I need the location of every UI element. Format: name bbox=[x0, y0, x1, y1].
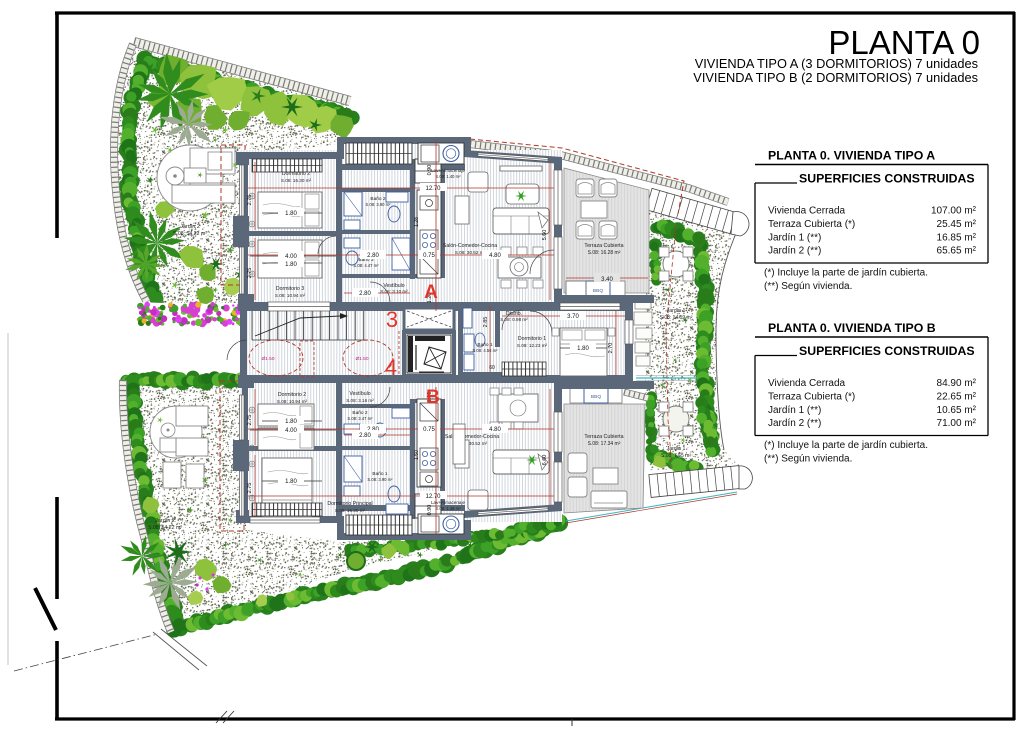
svg-text:S.08: 3.16 m²: S.08: 3.16 m² bbox=[346, 398, 374, 403]
svg-text:1.80: 1.80 bbox=[285, 479, 297, 485]
svg-text:107.00 m²: 107.00 m² bbox=[931, 206, 977, 217]
svg-text:S.08: 7.65 m²: S.08: 7.65 m² bbox=[661, 453, 691, 459]
svg-text:(*) Incluye la parte de jardín: (*) Incluye la parte de jardín cubierta. bbox=[764, 440, 928, 451]
svg-text:4: 4 bbox=[385, 355, 397, 380]
svg-text:S.08: 54.22 m²: S.08: 54.22 m² bbox=[173, 231, 207, 237]
svg-text:Dormitorio 1: Dormitorio 1 bbox=[518, 336, 546, 342]
svg-text:3.40: 3.40 bbox=[601, 277, 613, 283]
svg-text:Jardín 2: Jardín 2 bbox=[155, 518, 175, 524]
svg-text:Vivienda Cerrada: Vivienda Cerrada bbox=[768, 378, 846, 389]
svg-text:S.08: 4.56 m²: S.08: 4.56 m² bbox=[472, 348, 498, 353]
svg-text:Ø1.50: Ø1.50 bbox=[261, 356, 274, 362]
svg-text:Ø1.50: Ø1.50 bbox=[355, 356, 368, 362]
svg-text:S.08: 3.47 m²: S.08: 3.47 m² bbox=[347, 416, 373, 421]
svg-text:1.80: 1.80 bbox=[285, 211, 297, 217]
svg-text:5.60: 5.60 bbox=[542, 230, 548, 241]
svg-text:Jardín 2: Jardín 2 bbox=[180, 224, 200, 230]
svg-text:Terraza Cubierta: Terraza Cubierta bbox=[584, 243, 623, 249]
svg-text:12.70: 12.70 bbox=[425, 494, 441, 500]
svg-text:0.75: 0.75 bbox=[423, 427, 435, 433]
svg-text:1.50: 1.50 bbox=[414, 450, 420, 460]
svg-text:Terraza Cubierta: Terraza Cubierta bbox=[584, 434, 623, 440]
svg-text:Jardín 1: Jardín 1 bbox=[667, 446, 686, 452]
svg-text:2.75: 2.75 bbox=[247, 195, 253, 206]
svg-text:VIVIENDA TIPO A (3 DORMITORIOS: VIVIENDA TIPO A (3 DORMITORIOS) 7 unidad… bbox=[695, 56, 978, 71]
svg-text:16.85 m²: 16.85 m² bbox=[937, 232, 977, 243]
svg-text:A: A bbox=[424, 282, 438, 303]
svg-text:3: 3 bbox=[386, 307, 398, 332]
svg-text:1.80: 1.80 bbox=[285, 419, 297, 425]
svg-text:PLANTA 0. VIVIENDA TIPO B: PLANTA 0. VIVIENDA TIPO B bbox=[768, 321, 936, 335]
svg-text:2.75: 2.75 bbox=[247, 268, 253, 279]
svg-text:S.08: 1.40 m²: S.08: 1.40 m² bbox=[435, 174, 461, 179]
svg-text:2.75: 2.75 bbox=[247, 483, 253, 494]
svg-text:4.00: 4.00 bbox=[285, 428, 297, 434]
svg-text:S.08: 16.28 m²: S.08: 16.28 m² bbox=[588, 250, 621, 256]
svg-text:S.08: 30.52 m²: S.08: 30.52 m² bbox=[455, 250, 486, 255]
svg-text:4.80: 4.80 bbox=[489, 427, 501, 433]
svg-text:BBQ: BBQ bbox=[593, 288, 603, 294]
svg-text:S.08: 16.30 m²: S.08: 16.30 m² bbox=[281, 178, 312, 183]
svg-text:B: B bbox=[426, 387, 440, 408]
svg-text:Vivienda Cerrada: Vivienda Cerrada bbox=[768, 206, 846, 217]
svg-text:SUPERFICIES CONSTRUIDAS: SUPERFICIES CONSTRUIDAS bbox=[799, 172, 975, 186]
svg-text:Vestíbulo: Vestíbulo bbox=[349, 391, 370, 397]
svg-text:SUPERFICIES CONSTRUIDAS: SUPERFICIES CONSTRUIDAS bbox=[799, 344, 975, 358]
svg-text:S.08: 10.94 m²: S.08: 10.94 m² bbox=[275, 293, 306, 298]
svg-text:0.90: 0.90 bbox=[427, 505, 433, 516]
svg-text:2.70: 2.70 bbox=[608, 343, 614, 354]
svg-text:(**) Según vivienda.: (**) Según vivienda. bbox=[764, 454, 852, 465]
svg-text:65.65 m²: 65.65 m² bbox=[937, 246, 977, 257]
svg-text:S.08: 16.30 m²: S.08: 16.30 m² bbox=[335, 508, 366, 513]
svg-text:Dormitorio 2: Dormitorio 2 bbox=[278, 392, 306, 398]
svg-text:(**) Según vivienda.: (**) Según vivienda. bbox=[764, 281, 852, 292]
svg-text:Salón-Comedor-Cocina: Salón-Comedor-Cocina bbox=[443, 243, 497, 249]
svg-text:S.08: 17.34 m²: S.08: 17.34 m² bbox=[588, 441, 621, 447]
svg-text:S.08: 1.48 m²: S.08: 1.48 m² bbox=[435, 506, 461, 511]
svg-text:25.45 m²: 25.45 m² bbox=[937, 219, 977, 230]
svg-text:Dormitorio 3: Dormitorio 3 bbox=[276, 286, 304, 292]
svg-text:Jardín 1 (**): Jardín 1 (**) bbox=[768, 232, 821, 243]
svg-text:S.08: 12.23 m²: S.08: 12.23 m² bbox=[517, 343, 548, 348]
svg-text:60: 60 bbox=[489, 365, 495, 371]
svg-text:12.70: 12.70 bbox=[425, 186, 441, 192]
svg-text:Terraza Cubierta (*): Terraza Cubierta (*) bbox=[768, 219, 855, 230]
svg-text:84.90 m²: 84.90 m² bbox=[937, 378, 977, 389]
svg-text:S.08: 3.90 m²: S.08: 3.90 m² bbox=[367, 477, 393, 482]
svg-text:2.80: 2.80 bbox=[359, 291, 371, 297]
svg-text:S.08: 0.98 m²: S.08: 0.98 m² bbox=[500, 317, 528, 322]
svg-text:3.70: 3.70 bbox=[567, 314, 579, 320]
svg-text:S.08: 4.47 m²: S.08: 4.47 m² bbox=[353, 263, 379, 268]
svg-text:S.08: 10.94 m²: S.08: 10.94 m² bbox=[277, 399, 308, 404]
svg-text:2.85: 2.85 bbox=[483, 317, 489, 328]
svg-text:4.80: 4.80 bbox=[489, 253, 501, 259]
svg-text:Jardín 1: Jardín 1 bbox=[667, 308, 686, 314]
svg-text:1.80: 1.80 bbox=[285, 262, 297, 268]
svg-text:2.75: 2.75 bbox=[247, 415, 253, 426]
svg-text:6.60: 6.60 bbox=[542, 455, 548, 466]
svg-text:Dormitorio Principal: Dormitorio Principal bbox=[327, 501, 372, 507]
svg-text:Jardín 1 (**): Jardín 1 (**) bbox=[768, 405, 821, 416]
svg-text:10.65 m²: 10.65 m² bbox=[937, 405, 977, 416]
svg-text:VIVIENDA TIPO B (2 DORMITORIOS: VIVIENDA TIPO B (2 DORMITORIOS) 7 unidad… bbox=[693, 70, 978, 85]
svg-text:Jardín 2 (**): Jardín 2 (**) bbox=[768, 418, 821, 429]
svg-text:22.65 m²: 22.65 m² bbox=[937, 391, 977, 402]
svg-text:1.28: 1.28 bbox=[414, 217, 420, 227]
svg-text:BBQ: BBQ bbox=[591, 394, 601, 400]
svg-text:Terraza Cubierta (*): Terraza Cubierta (*) bbox=[768, 391, 855, 402]
svg-text:Jardín 2 (**): Jardín 2 (**) bbox=[768, 246, 821, 257]
svg-text:71.00 m²: 71.00 m² bbox=[937, 418, 977, 429]
svg-text:(*) Incluye la parte de jardí: (*) Incluye la parte de jardín cubierta. bbox=[764, 268, 928, 279]
svg-text:PLANTA 0. VIVIENDA TIPO A: PLANTA 0. VIVIENDA TIPO A bbox=[768, 149, 935, 163]
svg-text:S.08: 64.22 m²: S.08: 64.22 m² bbox=[148, 525, 182, 531]
svg-text:0.75: 0.75 bbox=[423, 253, 435, 259]
svg-text:2.80: 2.80 bbox=[367, 253, 379, 259]
svg-text:2.80: 2.80 bbox=[359, 433, 371, 439]
svg-text:0.90: 0.90 bbox=[427, 165, 433, 176]
svg-text:1.80: 1.80 bbox=[577, 346, 589, 352]
svg-text:S.08: 3.90 m²: S.08: 3.90 m² bbox=[365, 202, 391, 207]
